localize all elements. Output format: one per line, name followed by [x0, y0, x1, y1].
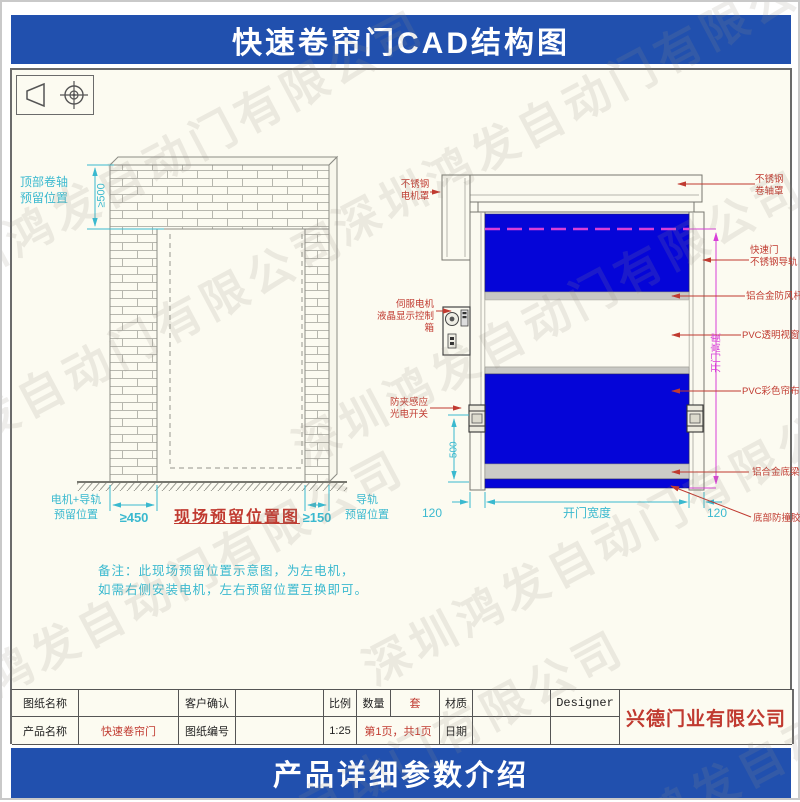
left-margin-dim: 120 [422, 505, 442, 521]
guide-rail-label: 快速门 不锈钢导轨 [750, 245, 800, 269]
product-name-label: 产品名称 [12, 717, 79, 745]
scale-label: 比例 [324, 690, 357, 717]
bottom-rubber-label: 底部防撞胶 [753, 513, 800, 525]
pvc-window-label: PVC透明视窗 [742, 330, 800, 342]
title-block-table: 图纸名称 客户确认 比例 数量 套 材质 Designer 兴德门业有限公司 产… [10, 689, 794, 744]
scale-value: 1:25 [324, 717, 357, 745]
quantity-label: 数量 [357, 690, 391, 717]
motor-cover-label: 不锈钢 电机罩 [396, 179, 434, 203]
crosshair-target-icon [58, 79, 90, 111]
right-margin-dim: 120 [707, 505, 727, 521]
photo-switch-label: 防夹感应 光电开关 [388, 397, 428, 421]
projection-symbol-box [16, 75, 94, 115]
designer-value [551, 717, 620, 745]
site-diagram-title: 现场预留位置图 [173, 507, 301, 529]
material-value [473, 690, 551, 717]
customer-confirm-label: 客户确认 [179, 690, 236, 717]
motor-rail-dim: ≥450 [110, 509, 158, 527]
rail-reserve-dim: 500 [447, 435, 461, 465]
rail-dim: ≥150 [296, 509, 338, 527]
top-reserve-dim: ≥500 [95, 177, 110, 213]
control-box-label: 伺服电机 液晶显示控制箱 [368, 299, 434, 335]
drawing-name-value [79, 690, 179, 717]
pages-value: 第1页，共1页 [357, 717, 440, 745]
drawing-no-label: 图纸编号 [179, 717, 236, 745]
door-width-dim-label: 开门宽度 [547, 505, 627, 521]
material-label: 材质 [440, 690, 473, 717]
drawing-name-label: 图纸名称 [12, 690, 79, 717]
date-label: 日期 [440, 717, 473, 745]
site-note: 备注：此现场预留位置示意图，为左电机， 如需右侧安装电机，左右预留位置互换即可。 [98, 562, 398, 600]
product-name-value: 快速卷帘门 [79, 717, 179, 745]
designer-label: Designer [551, 690, 620, 717]
first-angle-projection-icon [21, 80, 51, 110]
motor-rail-reserve-label: 电机+导轨 预留位置 [44, 493, 108, 523]
company-name: 兴德门业有限公司 [620, 690, 792, 745]
customer-confirm-value [236, 690, 324, 717]
roller-cover-label: 不锈钢 卷轴罩 [755, 174, 797, 198]
rail-reserve-label: 导轨 预留位置 [338, 493, 396, 523]
bottom-title-banner: 产品详细参数介绍 [11, 748, 791, 798]
cad-structure-page: { "banners": { "top": "快速卷帘门CAD结构图", "bo… [0, 0, 800, 800]
drawing-no-value [236, 717, 324, 745]
door-height-dim-label: 开门高度 [710, 330, 724, 376]
bottom-beam-label: 铝合金底梁 [752, 467, 800, 479]
quantity-value: 套 [391, 690, 440, 717]
top-title-banner: 快速卷帘门CAD结构图 [11, 15, 791, 64]
pvc-curtain-label: PVC彩色帘布 [742, 386, 800, 398]
date-value [473, 717, 551, 745]
wind-bar-label: 铝合金防风杆 [746, 291, 800, 303]
top-reserve-label: 顶部卷轴 预留位置 [20, 174, 92, 206]
